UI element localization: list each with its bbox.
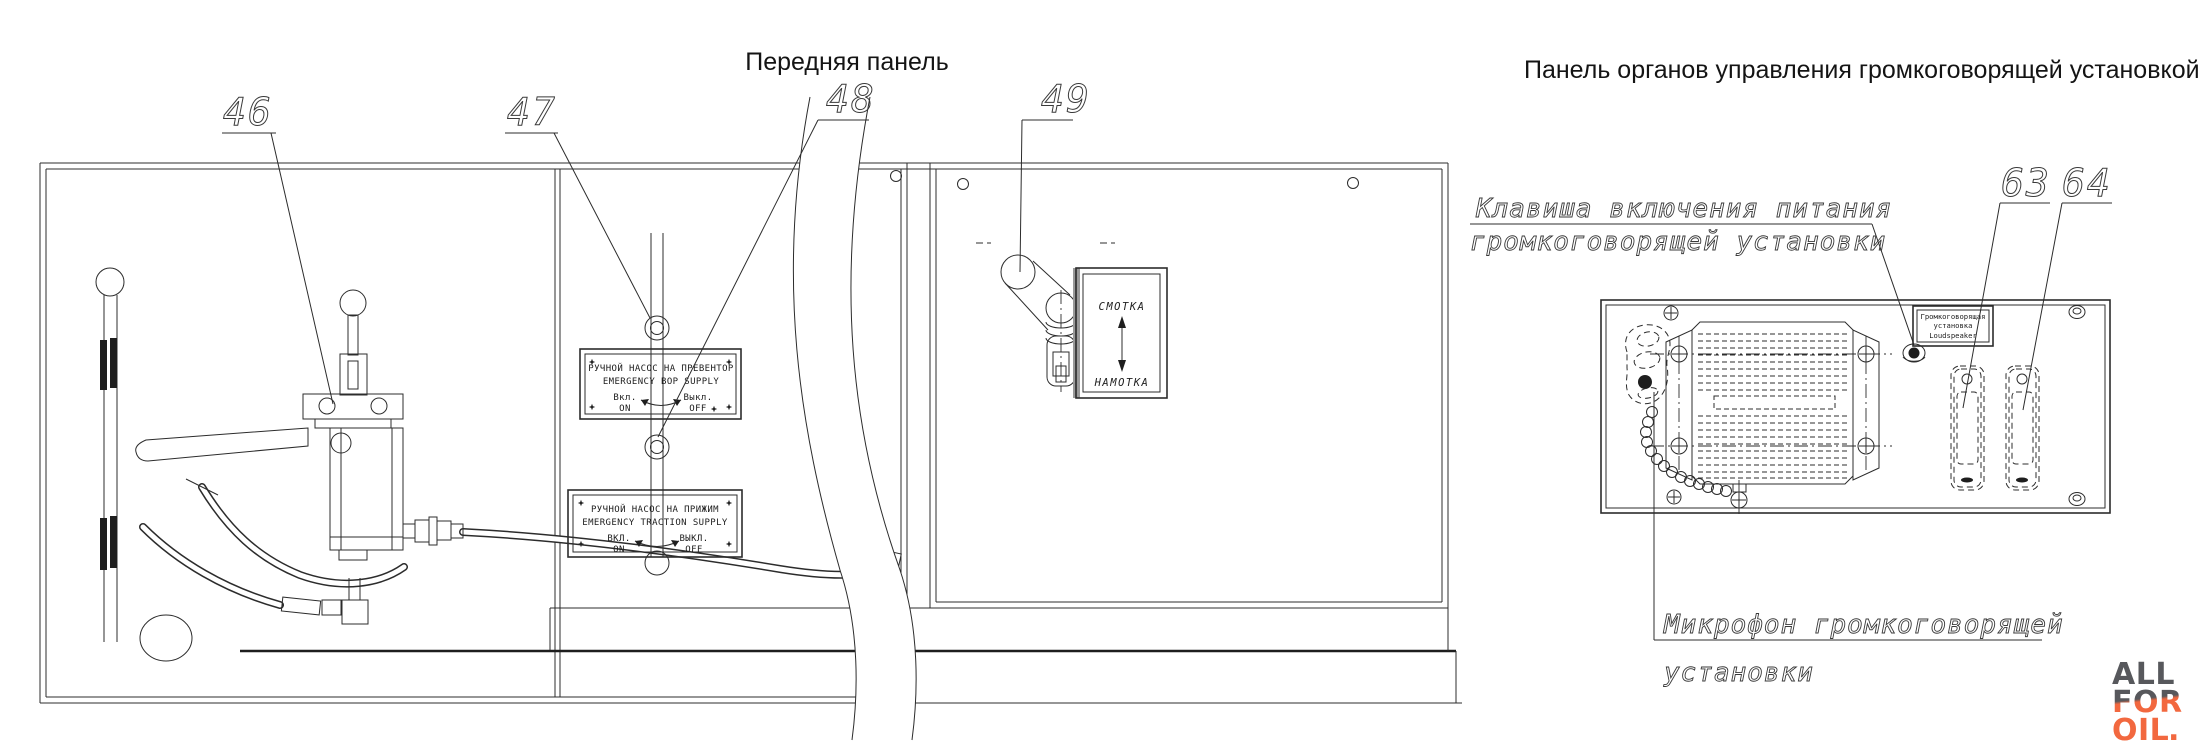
- callout-46-number: 46: [223, 90, 273, 134]
- speaker-panel-title: Панель органов управления громкоговоряще…: [1524, 56, 2200, 84]
- cable-reel-plate: СМОТКА НАМОТКА: [1073, 268, 1167, 398]
- microphone-annotation-line2: установки: [1663, 658, 1814, 688]
- callout-49: 49: [1020, 77, 1091, 272]
- valve-bolt-48: [645, 435, 669, 459]
- connector-64: [2006, 366, 2039, 490]
- traction-plate-title-ru: РУЧНОЙ НАСОС НА ПРИЖИМ: [591, 503, 719, 515]
- speaker-panel-drawing: Громкоговорящая установка Loudspeaker 6: [1470, 161, 2112, 688]
- traction-plate-title-en: EMERGENCY TRACTION SUPPLY: [582, 518, 728, 528]
- drawing-canvas: Передняя панель Панель органов управлени…: [0, 0, 2204, 746]
- panel-frame: [40, 163, 1462, 703]
- traction-plate-on-ru: ВКЛ.: [607, 534, 630, 544]
- bop-pump-plate: РУЧНОЙ НАСОС НА ПРЕВЕНТОР EMERGENCY BOP …: [580, 349, 741, 419]
- screw-icon: [1664, 306, 1678, 320]
- power-key-annotation: Клавиша включения питания громкоговоряще…: [1470, 194, 1914, 345]
- bop-plate-title-en: EMERGENCY BOP SUPPLY: [603, 377, 720, 387]
- callout-47: 47: [505, 90, 650, 318]
- logo-dot: .: [2168, 713, 2180, 746]
- callout-64-number: 64: [2062, 161, 2112, 205]
- loudspeaker-label-plate: Громкоговорящая установка Loudspeaker: [1913, 306, 1993, 346]
- callout-46: 46: [222, 90, 333, 404]
- logo-word-oil: OIL: [2112, 713, 2169, 746]
- bop-plate-off-ru: Выкл.: [683, 393, 712, 403]
- all-for-oil-logo: ALL FOR OIL .: [2112, 657, 2183, 746]
- speaker-plate-line1: Громкоговорящая: [1921, 312, 1986, 321]
- technical-drawing-page: Передняя панель Панель органов управлени…: [0, 0, 2204, 746]
- screw-icon: [2069, 306, 2085, 319]
- callout-48-number: 48: [826, 77, 876, 121]
- panel-screw: [958, 179, 969, 190]
- reel-control-joystick: [1001, 255, 1076, 392]
- microphone-annotation-line1: Микрофон громкоговорящей: [1663, 610, 2064, 640]
- speaker-plate-line3: Loudspeaker: [1929, 331, 1977, 340]
- hand-pump-assembly: [136, 290, 463, 661]
- traction-plate-on-en: ON: [613, 545, 625, 555]
- hydraulic-hoses: [143, 479, 901, 624]
- front-panel-title: Передняя панель: [745, 48, 948, 76]
- panel-screw: [1348, 178, 1359, 189]
- reel-down-label: НАМОТКА: [1094, 377, 1150, 389]
- callout-63-number: 63: [2001, 161, 2051, 205]
- traction-plate-off-ru: ВЫКЛ.: [679, 534, 708, 544]
- pull-rod-handle: [96, 268, 124, 642]
- reel-up-label: СМОТКА: [1099, 301, 1146, 313]
- callout-47-number: 47: [507, 90, 557, 134]
- bop-plate-off-en: OFF: [689, 404, 706, 414]
- bop-plate-on-en: ON: [619, 404, 631, 414]
- bop-plate-on-ru: Вкл.: [613, 393, 636, 403]
- break-lines: [793, 97, 916, 740]
- callout-49-number: 49: [1041, 77, 1091, 121]
- screw-icon: [1667, 490, 1681, 504]
- panel-screw: [891, 171, 902, 182]
- power-key-annotation-line1: Клавиша включения питания: [1475, 194, 1892, 224]
- microphone-annotation: Микрофон громкоговорящей установки: [1654, 392, 2064, 688]
- traction-plate-off-en: OFF: [685, 545, 702, 555]
- speaker-plate-line2: установка: [1934, 321, 1973, 330]
- screw-icon: [2069, 493, 2085, 506]
- mic-button: [1638, 375, 1652, 389]
- traction-pump-plate: РУЧНОЙ НАСОС НА ПРИЖИМ EMERGENCY TRACTIO…: [568, 490, 742, 557]
- valve-bolt-47: [645, 316, 669, 340]
- front-panel-drawing: РУЧНОЙ НАСОС НА ПРЕВЕНТОР EMERGENCY BOP …: [40, 77, 1462, 740]
- bop-plate-title-ru: РУЧНОЙ НАСОС НА ПРЕВЕНТОР: [588, 362, 734, 374]
- power-key-annotation-line2: громкоговорящей установки: [1470, 227, 1886, 257]
